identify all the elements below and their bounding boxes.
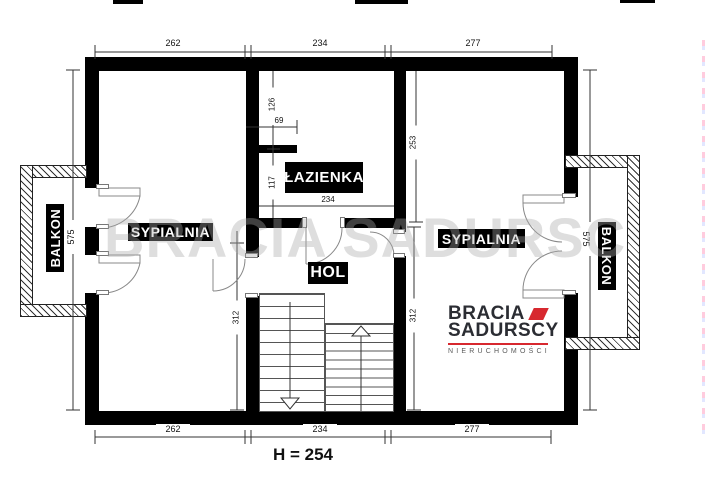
dim-bath-width: 234	[311, 195, 345, 204]
dim-bath-stub: 69	[268, 116, 290, 125]
agency-logo: BRACIA SADURSCY NIERUCHOMOŚCI	[448, 305, 560, 355]
scan-artifact-top-3	[620, 0, 655, 3]
door-jamb	[96, 290, 109, 295]
logo-tagline: NIERUCHOMOŚCI	[448, 348, 560, 355]
wall-exterior-left-lower	[85, 293, 99, 425]
dim-bedroom-right-depth: 253	[409, 126, 418, 160]
dim-top-left: 262	[156, 38, 190, 48]
balcony-left-wall-bottom	[20, 304, 87, 317]
wall-exterior-left-upper	[85, 57, 99, 188]
scan-noise-right-edge	[702, 40, 705, 440]
wall-exterior-right-lower	[564, 293, 578, 425]
ceiling-height-note: H = 254	[258, 445, 348, 465]
room-label-balkon-left: BALKON	[46, 204, 64, 272]
logo-brand-line2: SADURSCY	[448, 322, 560, 340]
wall-bathroom-stub	[246, 145, 297, 153]
dim-bottom-left: 262	[156, 424, 190, 434]
dim-bottom-right: 277	[455, 424, 489, 434]
dim-left-height: 575	[66, 220, 76, 254]
dim-hol-depth-right: 312	[409, 299, 418, 333]
dim-top-middle: 234	[303, 38, 337, 48]
logo-divider	[448, 343, 548, 345]
wall-exterior-right-upper	[564, 57, 578, 197]
dim-top-right: 277	[456, 38, 490, 48]
door-jamb	[245, 293, 258, 298]
balcony-right-wall-bottom	[565, 337, 640, 350]
wall-exterior-top	[85, 57, 578, 71]
door-jamb	[96, 184, 109, 189]
wall-bedroom-left-lower	[246, 296, 259, 411]
door-jamb	[562, 290, 576, 295]
scan-artifact-top-2	[355, 0, 408, 4]
wall-bedroom-right-lower	[394, 256, 406, 411]
watermark: BRACIA SADURSCY	[104, 206, 624, 270]
staircase-flight-right	[325, 323, 394, 412]
room-label-lazienka: ŁAZIENKA	[285, 162, 363, 193]
balcony-right-wall-side	[627, 155, 640, 350]
logo-parallelogram-icon	[528, 308, 549, 320]
staircase-flight-left	[259, 293, 325, 412]
wall-exterior-bottom	[85, 411, 578, 425]
dim-bottom-middle: 234	[303, 424, 337, 434]
floor-plan: SYPIALNIA ŁAZIENKA HOL SYPIALNIA BALKON …	[0, 0, 710, 483]
dim-bath-lower: 117	[268, 166, 277, 200]
door-jamb	[562, 193, 576, 198]
dim-hol-depth-left: 312	[232, 301, 241, 335]
balcony-left-wall-side	[20, 165, 33, 317]
scan-artifact-top-1	[113, 0, 143, 4]
